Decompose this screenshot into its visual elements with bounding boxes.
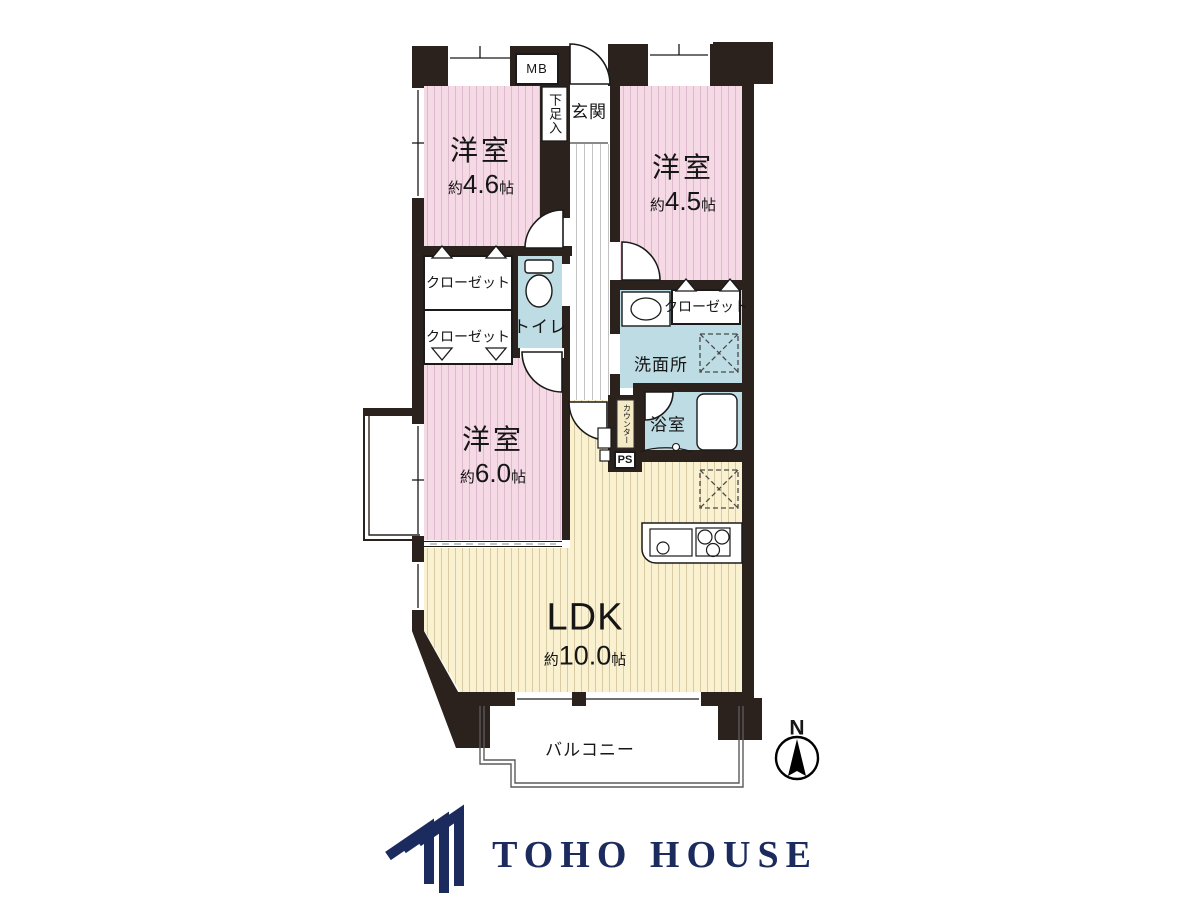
closet-right-label: クローゼット [664, 299, 748, 314]
bathtub [697, 394, 737, 450]
shoe-cabinet-label: 下足入 [547, 93, 561, 135]
bathroom-label: 浴室 [650, 417, 686, 436]
alcove [363, 408, 420, 540]
wall-right [742, 84, 754, 706]
room-6-0-label: 洋室 約6.0帖 [460, 425, 526, 487]
room-4-6-size: 約4.6帖 [448, 170, 514, 199]
washroom-label: 洗面所 [634, 357, 688, 376]
closet-upper-left-label: クローゼット [426, 275, 510, 290]
compass [776, 737, 818, 779]
toho-house-logo-text: TOHO HOUSE [492, 833, 818, 877]
door-leaf [598, 428, 611, 448]
kitchen-sink [650, 529, 692, 556]
room-4-5-name: 洋室 [650, 153, 716, 184]
entrance-label: 玄関 [571, 104, 607, 123]
ldk-label: LDK 約10.0帖 [544, 597, 627, 670]
room-4-5-size: 約4.5帖 [650, 187, 716, 216]
stove [696, 528, 730, 556]
ldk-name: LDK [544, 597, 627, 639]
toilet-door-opening [562, 264, 570, 306]
toilet-tank [525, 260, 553, 273]
toho-house-logo-mark [388, 814, 459, 893]
pipe-space-label: PS [618, 454, 633, 466]
hallway-floor [570, 144, 610, 402]
wall-corner-block-tr [713, 42, 773, 84]
room-6-0-name: 洋室 [460, 425, 526, 456]
toilet-bowl [526, 275, 552, 307]
wall-corner-block-br [718, 698, 762, 740]
floorplan-page: 洋室 約4.6帖 洋室 約4.5帖 洋室 約6.0帖 LDK 約10.0帖 玄関… [0, 0, 1200, 900]
washbasin-bowl [631, 298, 661, 320]
window-top-left [448, 46, 510, 86]
balcony-label: バルコニー [545, 742, 635, 761]
room-4-5-label: 洋室 約4.5帖 [650, 153, 716, 215]
room-4-6-name: 洋室 [448, 136, 514, 167]
room-4-6-label: 洋室 約4.6帖 [448, 136, 514, 198]
room-6-0-size: 約6.0帖 [460, 459, 526, 488]
door-leaf [600, 450, 610, 461]
floor-plan-svg [0, 0, 1200, 900]
ldk-size: 約10.0帖 [544, 641, 627, 671]
counter-label: カウンター [622, 404, 631, 444]
toilet-label: トイレ [513, 319, 567, 338]
compass-north-label: N [789, 716, 804, 739]
meter-box-label: MB [526, 62, 548, 76]
washroom-door-opening [610, 334, 620, 374]
closet-lower-left-label: クローゼット [426, 329, 510, 344]
